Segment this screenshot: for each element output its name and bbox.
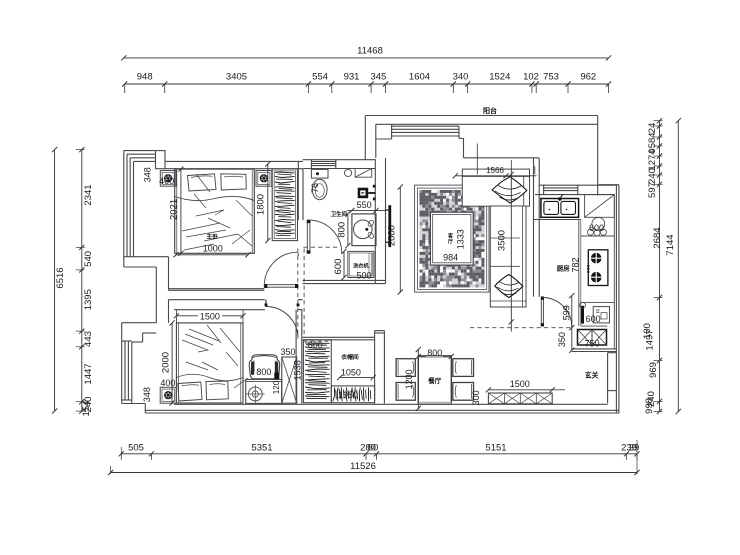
svg-text:1200: 1200	[404, 369, 414, 389]
svg-text:948: 948	[137, 72, 153, 83]
svg-text:350: 350	[557, 332, 567, 347]
svg-text:505: 505	[128, 443, 144, 454]
svg-text:102: 102	[523, 72, 539, 83]
svg-text:1050: 1050	[341, 367, 361, 377]
svg-text:餐厅: 餐厅	[427, 376, 442, 385]
svg-text:931: 931	[344, 72, 360, 83]
svg-text:76: 76	[310, 183, 320, 193]
svg-text:2684: 2684	[652, 227, 663, 248]
svg-text:1566: 1566	[486, 166, 504, 175]
svg-text:1500: 1500	[510, 379, 530, 389]
svg-text:154: 154	[81, 401, 92, 417]
svg-text:11468: 11468	[357, 46, 383, 57]
svg-text:1395: 1395	[83, 289, 94, 310]
svg-text:782: 782	[571, 257, 581, 272]
svg-text:600: 600	[333, 259, 344, 275]
svg-text:984: 984	[443, 252, 458, 262]
svg-text:600: 600	[589, 223, 604, 233]
svg-text:800: 800	[337, 222, 348, 238]
svg-text:5151: 5151	[485, 443, 506, 454]
svg-text:1333: 1333	[456, 229, 466, 249]
svg-text:阳台: 阳台	[483, 106, 497, 115]
svg-text:2021: 2021	[169, 199, 180, 220]
svg-text:80: 80	[368, 443, 379, 454]
svg-text:1000: 1000	[203, 244, 223, 254]
svg-text:24: 24	[647, 123, 658, 134]
svg-text:2000: 2000	[160, 352, 171, 373]
svg-text:962: 962	[580, 72, 596, 83]
svg-text:800: 800	[256, 367, 271, 377]
svg-text:厨房: 厨房	[557, 264, 571, 273]
svg-text:345: 345	[370, 72, 386, 83]
svg-text:11526: 11526	[350, 461, 376, 472]
svg-text:3500: 3500	[497, 230, 508, 251]
svg-text:洗衣机: 洗衣机	[353, 262, 369, 270]
svg-text:7144: 7144	[665, 234, 676, 255]
svg-text:600: 600	[308, 340, 323, 350]
svg-text:1538: 1538	[293, 360, 303, 380]
svg-text:0584: 0584	[647, 132, 658, 153]
svg-text:39: 39	[629, 443, 640, 454]
svg-text:540: 540	[83, 251, 94, 267]
svg-text:400: 400	[160, 378, 175, 388]
svg-text:6516: 6516	[55, 267, 66, 288]
svg-text:120: 120	[272, 380, 281, 394]
svg-text:400: 400	[159, 176, 174, 186]
svg-text:5351: 5351	[251, 443, 272, 454]
svg-text:3405: 3405	[226, 72, 247, 83]
svg-text:100: 100	[642, 323, 653, 339]
svg-text:998: 998	[644, 398, 655, 414]
svg-text:753: 753	[543, 72, 559, 83]
svg-text:2341: 2341	[83, 184, 94, 205]
svg-text:550: 550	[357, 200, 372, 210]
svg-text:1447: 1447	[83, 363, 94, 384]
svg-text:750: 750	[584, 339, 599, 349]
svg-text:599: 599	[562, 305, 572, 320]
svg-text:348: 348	[143, 167, 153, 182]
svg-text:800: 800	[427, 348, 442, 358]
svg-text:443: 443	[83, 331, 94, 347]
svg-text:1604: 1604	[409, 72, 430, 83]
svg-text:1524: 1524	[489, 72, 510, 83]
svg-text:554: 554	[312, 72, 328, 83]
svg-text:350: 350	[280, 347, 295, 357]
svg-text:2000: 2000	[387, 225, 398, 246]
svg-text:卫生间: 卫生间	[331, 210, 348, 218]
svg-text:500: 500	[356, 270, 371, 280]
svg-text:340: 340	[453, 72, 469, 83]
svg-text:玄关: 玄关	[585, 371, 599, 380]
svg-text:1950: 1950	[338, 390, 358, 400]
svg-text:348: 348	[142, 387, 152, 402]
svg-text:1500: 1500	[200, 311, 220, 321]
svg-text:600: 600	[586, 314, 601, 324]
svg-text:主卧: 主卧	[206, 233, 218, 241]
svg-text:969: 969	[648, 362, 659, 378]
svg-text:厅: 厅	[448, 238, 453, 245]
svg-text:衣帽间: 衣帽间	[341, 353, 359, 361]
svg-text:300: 300	[471, 390, 481, 405]
svg-text:1800: 1800	[256, 194, 267, 215]
